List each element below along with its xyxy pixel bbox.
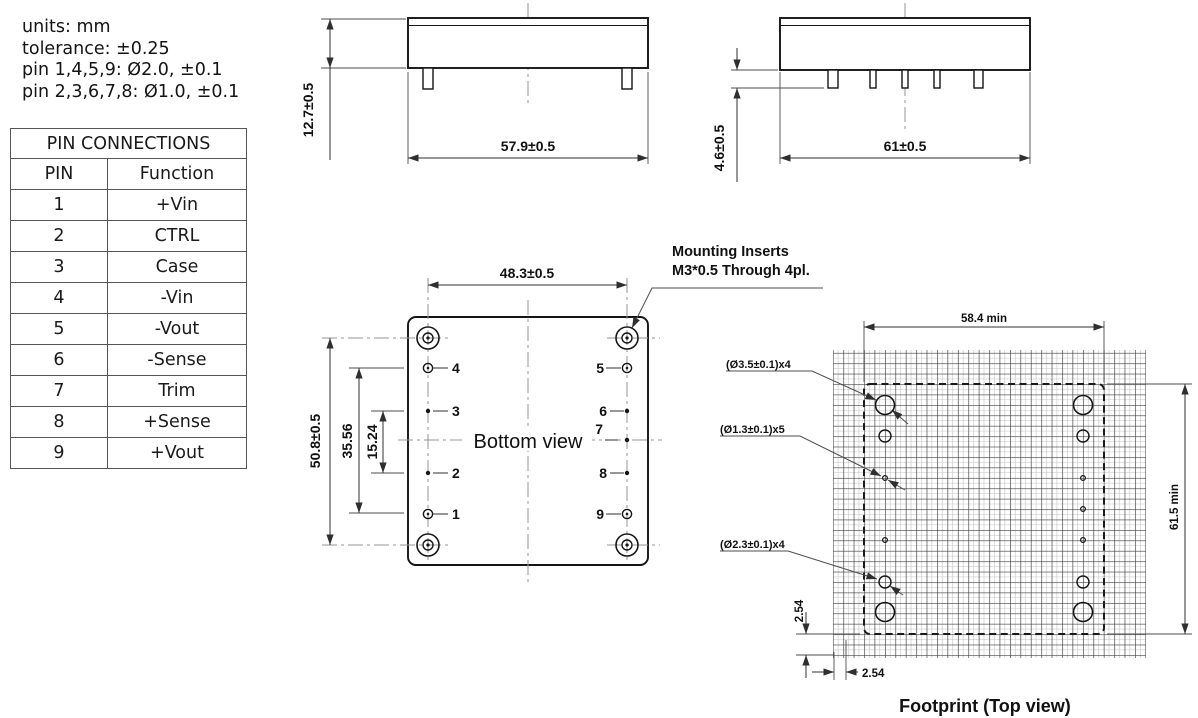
pin-label: 6 [599, 403, 607, 419]
mounting-note-line2: M3*0.5 Through 4pl. [672, 263, 810, 279]
engineering-drawing: 12.7±0.5 57.9±0.5 4.6±0.5 61±0.5 [0, 0, 1198, 718]
callout-mounting-holes: (Ø3.5±0.1)x4 [726, 359, 792, 371]
side-pin-length-dim: 4.6±0.5 [711, 124, 727, 171]
front-width-dim: 57.9±0.5 [501, 138, 556, 154]
bottom-height-dim: 50.8±0.5 [307, 414, 323, 469]
pin-label: 7 [595, 421, 603, 437]
front-height-dim: 12.7±0.5 [300, 83, 316, 138]
pin-label: 3 [452, 403, 460, 419]
bottom-inner-pin-span-dim: 15.24 [364, 424, 380, 459]
footprint-height-dim: 61.5 min [1169, 484, 1181, 530]
pin-label: 4 [452, 360, 460, 376]
pin-label: 5 [596, 360, 604, 376]
bottom-view-label: Bottom view [474, 431, 583, 453]
footprint-col-pitch-dim: 2.54 [862, 668, 885, 680]
pin-label: 2 [452, 465, 460, 481]
pin-label: 8 [599, 465, 607, 481]
side-width-dim: 61±0.5 [884, 138, 927, 154]
pin-label: 9 [596, 506, 604, 522]
bottom-width-dim: 48.3±0.5 [500, 265, 555, 281]
bottom-view: 48.3±0.5 50.8±0.5 35.56 15.24 [307, 244, 823, 585]
callout-large-holes: (Ø2.3±0.1)x4 [720, 539, 786, 551]
footprint-width-dim: 58.4 min [961, 313, 1007, 325]
callout-small-holes: (Ø1.3±0.1)x5 [720, 424, 785, 436]
mounting-note-line1: Mounting Inserts [672, 244, 789, 260]
footprint-title: Footprint (Top view) [899, 696, 1071, 716]
front-view: 12.7±0.5 57.9±0.5 [300, 3, 648, 164]
bottom-outer-pin-span-dim: 35.56 [339, 423, 355, 458]
pin-label: 1 [452, 506, 460, 522]
footprint-view: 58.4 min 61.5 min 2.54 2.54 (Ø3.5±0.1)x4… [720, 313, 1192, 716]
drawing-sheet: units: mm tolerance: ±0.25 pin 1,4,5,9: … [0, 0, 1198, 718]
side-view: 4.6±0.5 61±0.5 [711, 3, 1030, 182]
footprint-row-pitch-dim: 2.54 [794, 599, 806, 622]
